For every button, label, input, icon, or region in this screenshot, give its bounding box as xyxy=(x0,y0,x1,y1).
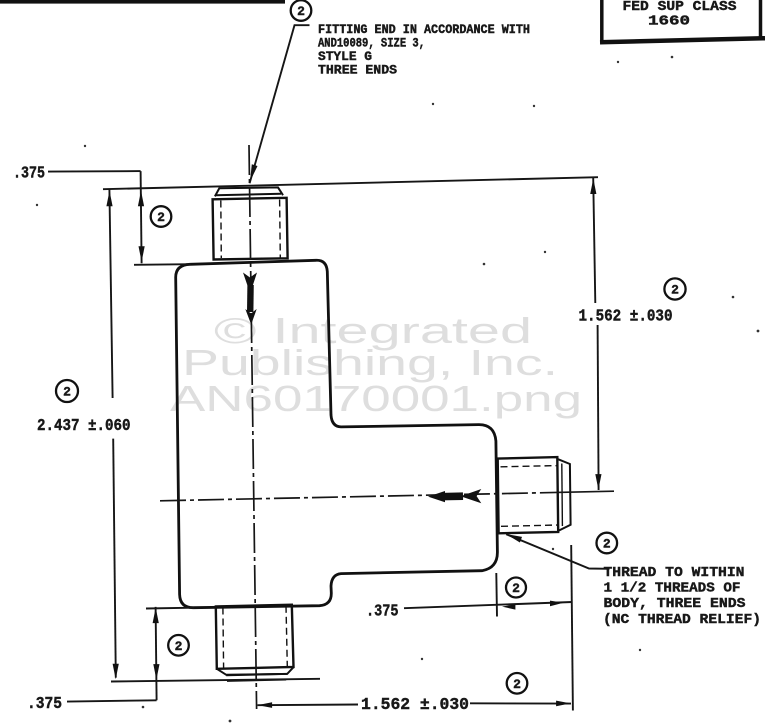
svg-text:2: 2 xyxy=(512,581,520,596)
svg-text:1.562 ±.030: 1.562 ±.030 xyxy=(361,695,469,714)
svg-text:.375: .375 xyxy=(27,695,62,713)
svg-text:Publishing, Inc.: Publishing, Inc. xyxy=(182,342,558,383)
svg-text:1660: 1660 xyxy=(648,15,690,30)
svg-text:FITTING END IN ACCORDANCE WITH: FITTING END IN ACCORDANCE WITH xyxy=(318,23,530,37)
svg-text:2: 2 xyxy=(63,385,71,400)
svg-text:AND10089, SIZE 3,: AND10089, SIZE 3, xyxy=(318,37,425,51)
svg-text:2: 2 xyxy=(513,677,521,692)
svg-text:THREE ENDS: THREE ENDS xyxy=(318,64,398,78)
svg-text:.375: .375 xyxy=(13,165,45,183)
svg-text:2: 2 xyxy=(671,283,679,298)
svg-text:1.562 ±.030: 1.562 ±.030 xyxy=(579,308,673,326)
svg-text:1 1/2 THREADS OF: 1 1/2 THREADS OF xyxy=(604,581,741,597)
svg-text:2.437 ±.060: 2.437 ±.060 xyxy=(37,417,131,435)
svg-text:.375: .375 xyxy=(366,603,399,621)
svg-text:2: 2 xyxy=(297,4,305,19)
svg-text:2: 2 xyxy=(603,537,611,552)
svg-text:2: 2 xyxy=(175,639,183,654)
svg-text:STYLE G: STYLE G xyxy=(318,50,372,64)
svg-text:FED SUP CLASS: FED SUP CLASS xyxy=(623,0,737,15)
svg-text:(NC THREAD RELIEF): (NC THREAD RELIEF) xyxy=(603,612,761,628)
svg-text:AN60170001.png: AN60170001.png xyxy=(170,378,582,419)
svg-text:BODY, THREE ENDS: BODY, THREE ENDS xyxy=(604,596,746,612)
svg-text:2: 2 xyxy=(157,210,165,225)
svg-text:THREAD TO WITHIN: THREAD TO WITHIN xyxy=(604,565,745,581)
